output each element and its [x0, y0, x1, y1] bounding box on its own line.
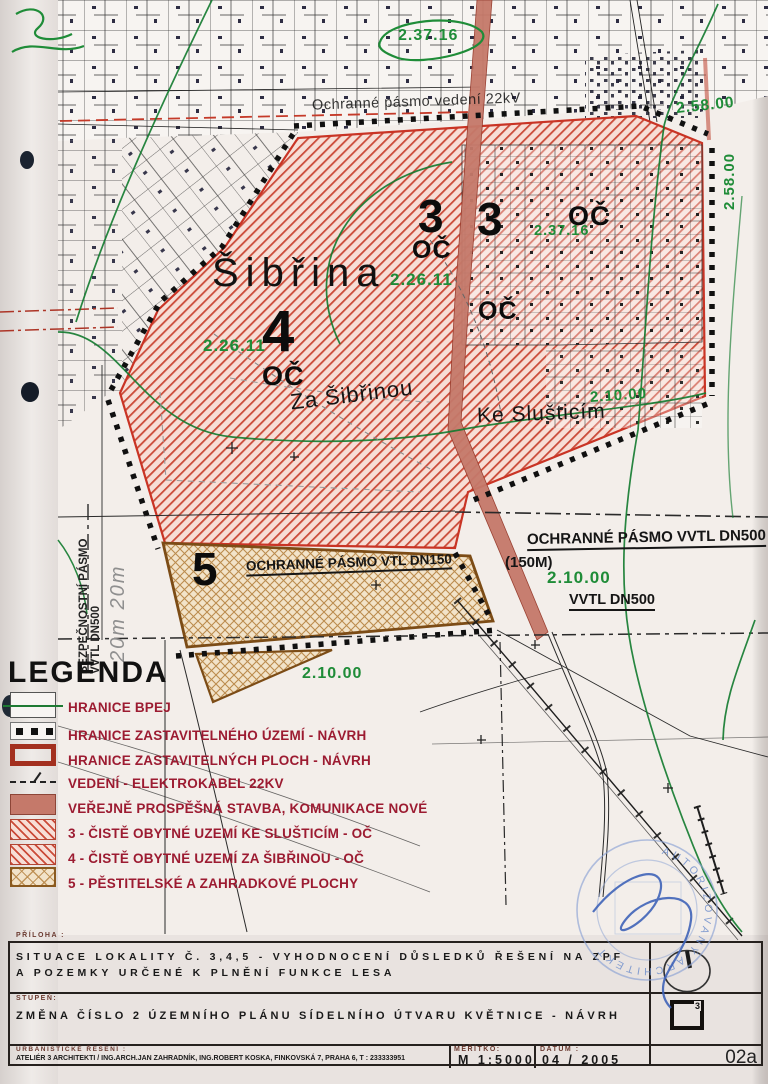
- safety-zone-line2: VVTL DN500: [90, 514, 102, 674]
- bpej-label-vertical: 2.58.00: [722, 153, 738, 210]
- zone-3-number: 3: [477, 195, 503, 243]
- datum-label: DATUM :: [540, 1046, 580, 1053]
- legend-item: HRANICE ZASTAVITELNÉHO ÚZEMÍ - NÁVRH: [68, 728, 366, 743]
- stupen-value: ZMĚNA ČÍSLO 2 ÚZEMNÍHO PLÁNU SÍDELNÍHO Ú…: [16, 1010, 620, 1022]
- scanned-plan-page: Ochranné pásmo vedení 22kV Šibřina 2.26.…: [0, 0, 768, 1084]
- legend-title: LEGENDA: [8, 656, 169, 690]
- dimension-note: 20m 20m: [108, 565, 129, 662]
- legend-swatch-solid-road: [10, 794, 56, 815]
- bpej-label: 2.10.00: [547, 569, 611, 587]
- street-label-ke-slusticim: Ke Slušticím: [477, 401, 606, 428]
- locality-icon-number: 3: [694, 1001, 701, 1011]
- datum-value: 04 / 2005: [542, 1053, 621, 1067]
- bpej-label: 2.10.00: [302, 666, 362, 683]
- legend-item: 3 - ČISTĚ OBYTNÉ UZEMÍ KE SLUŠTICÍM - OČ: [68, 826, 372, 841]
- vvtl-pipeline-label: VVTL DN500: [569, 593, 655, 611]
- bpej-label: 2.26.11: [203, 337, 266, 355]
- priloha-label: PŘÍLOHA :: [16, 932, 65, 939]
- legend-item: 4 - ČISTĚ OBYTNÉ UZEMÍ ZA ŠIBŘINOU - OČ: [68, 851, 364, 866]
- legend-swatch-cross-5: [10, 867, 56, 887]
- priloha-line2: A POZEMKY URČENÉ K PLNĚNÍ FUNKCE LESA: [16, 967, 395, 979]
- zone-5-number: 5: [192, 545, 218, 593]
- urbanisticke-value: ATELIÉR 3 ARCHITEKTI / ING.ARCH.JAN ZAHR…: [16, 1055, 405, 1062]
- zone-3-oc-label: OČ: [478, 298, 518, 324]
- legend-item: HRANICE BPEJ: [68, 700, 171, 715]
- bpej-label: 2.26.11: [390, 271, 453, 289]
- zone-4-number: 4: [262, 302, 294, 363]
- locality-icon: 3: [670, 1000, 704, 1030]
- urbanisticke-label: URBANISTICKÉ ŘEŠENÍ :: [16, 1046, 127, 1053]
- zone-3-number: 3: [418, 192, 444, 240]
- meritko-value: M 1:5000: [458, 1053, 535, 1067]
- bpej-label-circled: 2.37.16: [398, 28, 458, 45]
- title-block: PŘÍLOHA : SITUACE LOKALITY Č. 3,4,5 - VY…: [8, 941, 763, 1066]
- bpej-label: 2.37.16: [534, 224, 589, 239]
- legend-swatch-bpej: [10, 692, 56, 718]
- legend-swatch-hatch-4: [10, 844, 56, 865]
- meritko-label: MĚŘÍTKO:: [454, 1046, 501, 1053]
- legend-item: HRANICE ZASTAVITELNÝCH PLOCH - NÁVRH: [68, 753, 371, 768]
- legend-swatch-hatch-3: [10, 819, 56, 840]
- legend-swatch-dotted-boundary: [10, 722, 56, 740]
- legend-item: VEDENÍ - ELEKTROKABEL 22KV: [68, 776, 284, 791]
- sheet-number: 02a: [651, 1047, 765, 1069]
- zone-4-oc-label: OČ: [262, 362, 305, 390]
- protection-zone-vvtl-note-2: (150M): [505, 555, 553, 571]
- safety-zone-vertical-note: BEZPEČNOSTNÍ PÁSMO VVTL DN500: [78, 514, 102, 674]
- safety-zone-line1: BEZPEČNOSTNÍ PÁSMO: [78, 514, 90, 674]
- zone-3-oc-label: OČ: [412, 237, 452, 263]
- legend-swatch-cable-line: [10, 781, 56, 783]
- legend-item: 5 - PĚSTITELSKÉ A ZAHRADKOVÉ PLOCHY: [68, 876, 358, 891]
- legend-item: VEŘEJNĚ PROSPĚŠNÁ STAVBA, KOMUNIKACE NOV…: [68, 801, 428, 816]
- legend-swatch-red-outline: [10, 744, 56, 766]
- stupen-label: STUPEŇ:: [16, 995, 57, 1002]
- north-arrow-icon: [659, 946, 715, 994]
- street-label-sibrina: Šibřina: [212, 252, 386, 294]
- priloha-line1: SITUACE LOKALITY Č. 3,4,5 - VYHODNOCENÍ …: [16, 951, 624, 963]
